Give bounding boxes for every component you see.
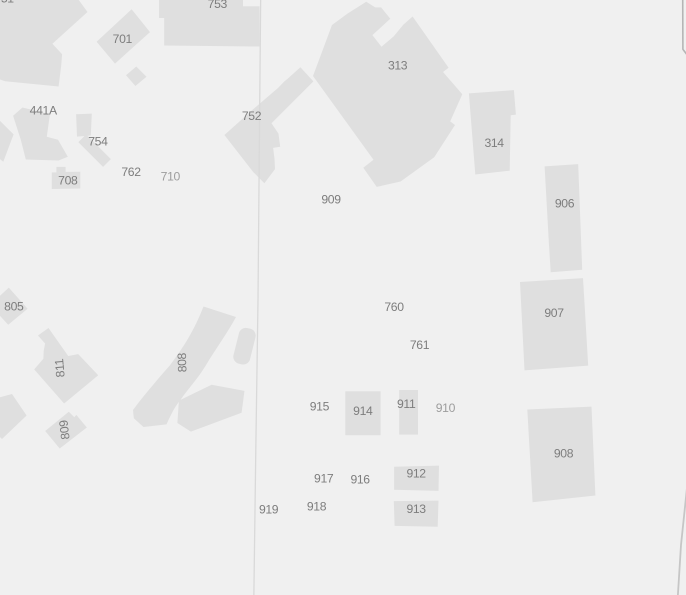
svg-text:314: 314	[484, 136, 504, 150]
svg-text:51: 51	[1, 0, 14, 6]
svg-text:912: 912	[406, 466, 426, 480]
svg-text:754: 754	[88, 134, 108, 148]
svg-text:916: 916	[350, 472, 370, 486]
svg-text:762: 762	[121, 165, 141, 179]
svg-text:907: 907	[544, 306, 564, 320]
svg-text:915: 915	[310, 400, 330, 414]
svg-text:441A: 441A	[30, 103, 58, 117]
svg-text:919: 919	[259, 503, 279, 517]
svg-text:909: 909	[321, 193, 341, 207]
svg-text:753: 753	[208, 0, 228, 11]
svg-text:911: 911	[397, 397, 416, 411]
svg-text:918: 918	[307, 499, 327, 513]
svg-text:809: 809	[56, 419, 72, 440]
svg-text:761: 761	[410, 338, 430, 352]
svg-text:808: 808	[175, 352, 190, 372]
svg-text:313: 313	[388, 58, 408, 72]
svg-text:710: 710	[161, 169, 181, 183]
svg-text:917: 917	[314, 471, 334, 485]
svg-text:760: 760	[384, 300, 404, 314]
svg-text:708: 708	[58, 174, 78, 188]
svg-text:805: 805	[4, 300, 24, 314]
svg-text:811: 811	[52, 358, 68, 378]
svg-text:908: 908	[554, 447, 574, 461]
svg-text:701: 701	[113, 32, 133, 46]
svg-text:752: 752	[242, 109, 262, 123]
svg-text:910: 910	[436, 401, 456, 415]
svg-text:906: 906	[555, 197, 575, 211]
svg-text:913: 913	[406, 502, 426, 516]
svg-text:914: 914	[353, 404, 373, 418]
